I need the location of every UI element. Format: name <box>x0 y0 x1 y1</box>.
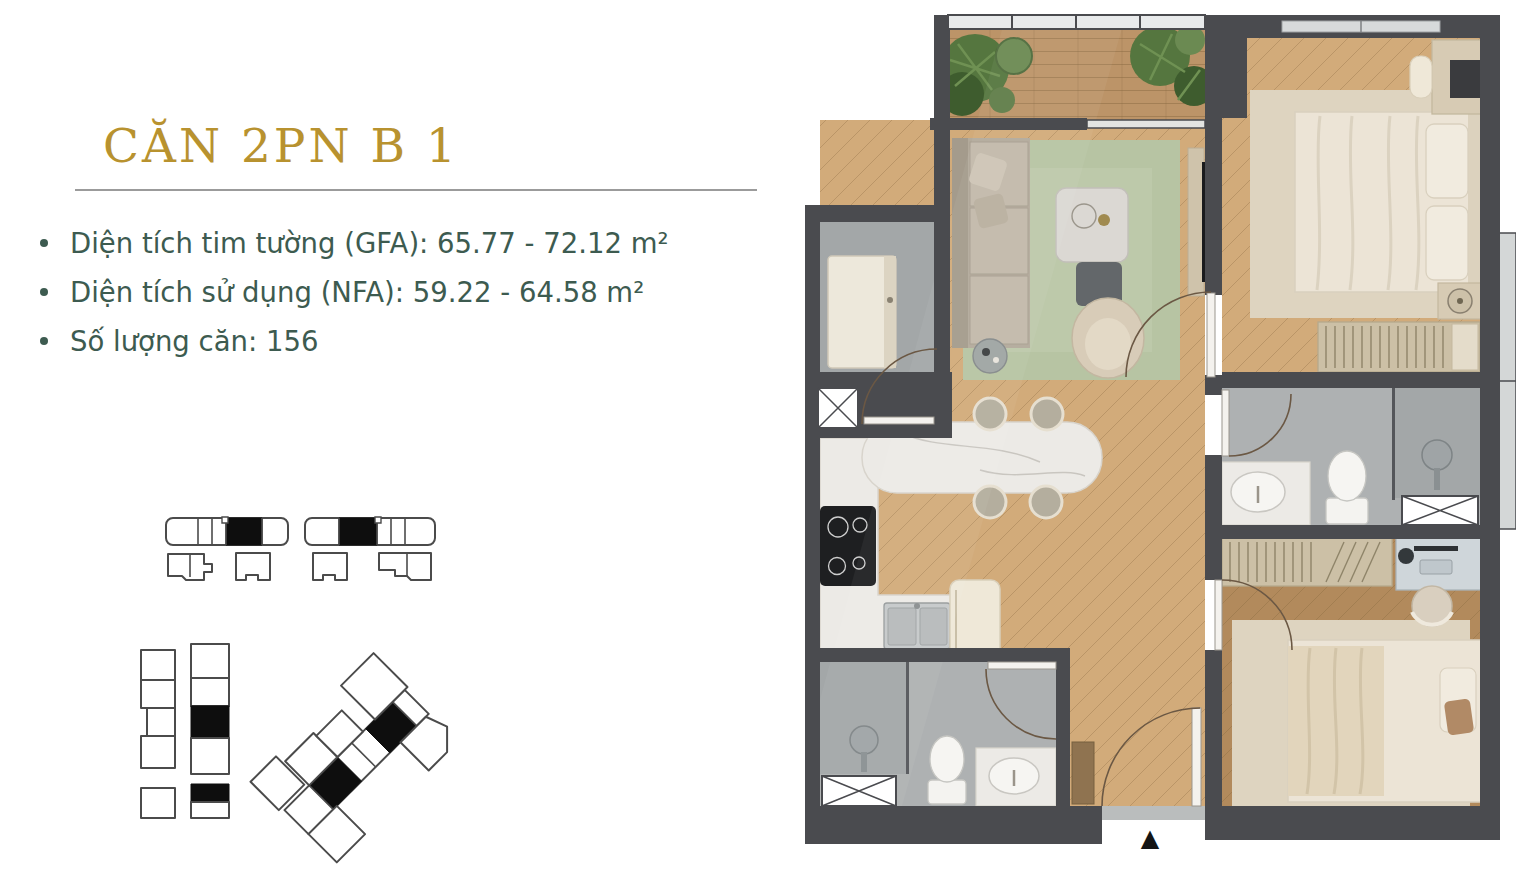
page: CĂN 2PN B 1 Diện tích tim tường (GFA): 6… <box>0 0 1516 884</box>
shaft-icon <box>822 776 896 806</box>
highlighted-unit <box>191 706 229 738</box>
entry-threshold <box>1102 806 1205 820</box>
list-item: Diện tích tim tường (GFA): 65.77 - 72.12… <box>40 222 669 263</box>
keyplan-tower-diagonal <box>262 666 454 858</box>
keyplan-tower-stack <box>137 642 249 818</box>
bullet-icon <box>40 239 48 247</box>
shoe-cabinet <box>1072 742 1094 804</box>
bullet-icon <box>40 288 48 296</box>
shaft-icon <box>818 388 858 428</box>
pillow <box>1426 124 1468 198</box>
spec-nfa: Diện tích sử dụng (NFA): 59.22 - 64.58 m… <box>70 276 644 308</box>
spec-list: Diện tích tim tường (GFA): 65.77 - 72.12… <box>40 222 669 361</box>
title-divider <box>75 189 757 191</box>
keyplan-block-b <box>303 514 441 582</box>
shower-glass <box>1392 388 1395 500</box>
spec-unit-count: Số lượng căn: 156 <box>70 325 318 357</box>
toilet <box>930 736 964 782</box>
spec-gfa: Diện tích tim tường (GFA): 65.77 - 72.12… <box>70 227 669 259</box>
toilet <box>1328 451 1366 501</box>
page-title: CĂN 2PN B 1 <box>103 120 459 172</box>
stool <box>1410 56 1432 98</box>
highlighted-unit <box>226 518 262 545</box>
shower-head-icon <box>1422 440 1452 470</box>
throw-pillow <box>1444 698 1474 735</box>
floor-plan <box>800 0 1516 884</box>
sliding-door <box>1087 120 1205 128</box>
highlighted-unit <box>339 518 377 545</box>
keyplan-block-a <box>164 514 294 582</box>
list-item: Diện tích sử dụng (NFA): 59.22 - 64.58 m… <box>40 271 669 312</box>
bullet-icon <box>40 337 48 345</box>
highlighted-unit <box>191 784 229 802</box>
utility-room <box>828 256 896 368</box>
list-item: Số lượng căn: 156 <box>40 320 669 361</box>
shaft-icon <box>1402 496 1478 525</box>
entry-marker: ▲ <box>1133 826 1167 850</box>
pillow <box>1426 206 1468 280</box>
tv-console <box>1188 148 1204 296</box>
